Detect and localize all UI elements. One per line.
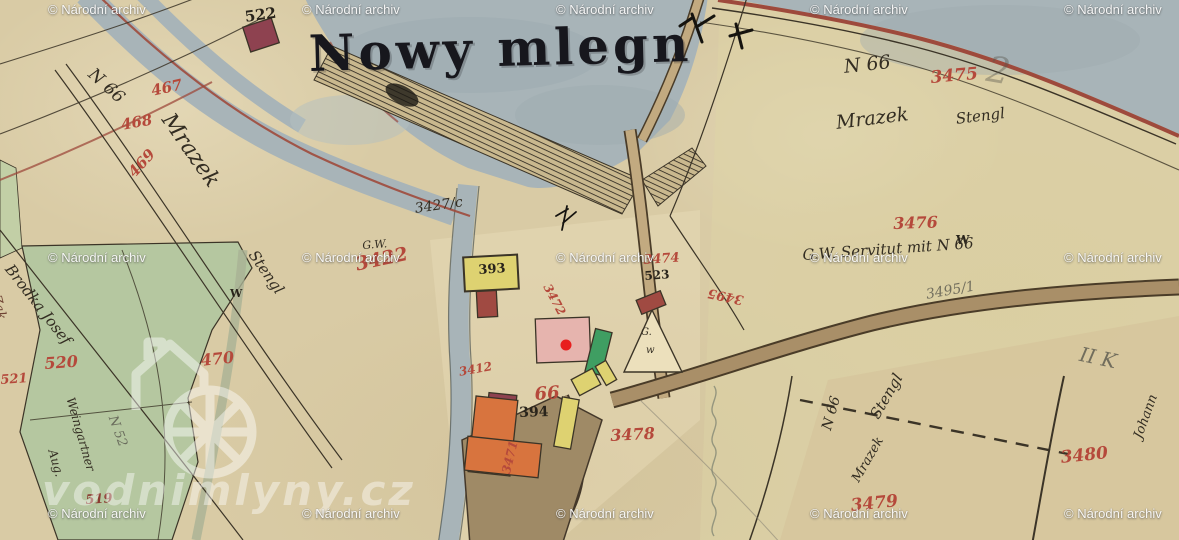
archive-watermark: © Národní archiv <box>48 506 146 521</box>
map-label: 66 <box>534 384 560 404</box>
archive-watermark: © Národní archiv <box>1064 2 1162 17</box>
map-label: N 66 <box>820 395 843 432</box>
archive-watermark: © Národní archiv <box>1064 250 1162 265</box>
archive-watermark: © Národní archiv <box>810 506 908 521</box>
map-label: Stengl <box>955 106 1006 127</box>
archive-watermark: © Národní archiv <box>556 250 654 265</box>
archive-watermark: © Národní archiv <box>556 2 654 17</box>
archive-watermark: © Národní archiv <box>302 250 400 265</box>
map-label: 3475 <box>930 66 979 87</box>
map-label: 3427/c <box>414 195 464 216</box>
map-label: Johann <box>1132 393 1160 441</box>
map-label: 521 <box>0 372 28 387</box>
map-label: 3476 <box>893 214 938 232</box>
map-label: 520 <box>44 354 78 372</box>
map-label: 3472 <box>541 282 567 317</box>
map-label: 3495/1 <box>925 279 976 301</box>
map-label: 469 <box>126 147 158 180</box>
archive-watermark: © Národní archiv <box>48 2 146 17</box>
map-label: 3495 <box>707 286 745 306</box>
map-label: 3412 <box>458 360 493 378</box>
map-label: 394 <box>519 405 549 420</box>
map-label: 523 <box>644 268 670 282</box>
archive-watermark: © Národní archiv <box>302 506 400 521</box>
map-label: Stengl <box>246 248 287 297</box>
map-scan: Nowy mlegn 522N 66467468469MrazekStenglW… <box>0 0 1179 540</box>
map-label: 3478 <box>610 426 655 444</box>
map-label: Mrazek <box>850 435 886 485</box>
map-label: 468 <box>120 113 153 133</box>
map-label: N 66 <box>843 53 892 77</box>
map-label: Stengl <box>868 371 906 421</box>
map-label: 3480 <box>1060 445 1109 467</box>
map-label: II K <box>1078 344 1118 371</box>
map-label: W <box>230 288 242 299</box>
archive-watermark: © Národní archiv <box>810 250 908 265</box>
archive-watermark: © Národní archiv <box>1064 506 1162 521</box>
map-label: N 66 <box>85 66 128 107</box>
map-label: 467 <box>150 77 184 98</box>
archive-watermark: © Národní archiv <box>556 506 654 521</box>
map-label: G. <box>641 328 652 338</box>
map-label: 2 <box>984 52 1013 91</box>
map-label: 393 <box>478 262 506 277</box>
archive-watermark: © Národní archiv <box>810 2 908 17</box>
map-label: Mrazek <box>157 110 223 192</box>
map-label: 522 <box>244 6 277 25</box>
archive-watermark: © Národní archiv <box>48 250 146 265</box>
map-label: w <box>646 346 655 356</box>
map-label: Zak <box>0 294 8 321</box>
map-label: Brodka Josef <box>2 262 73 348</box>
map-label: 3471 <box>500 440 520 475</box>
archive-watermark: © Národní archiv <box>302 2 400 17</box>
map-label: Mrazek <box>835 105 909 133</box>
